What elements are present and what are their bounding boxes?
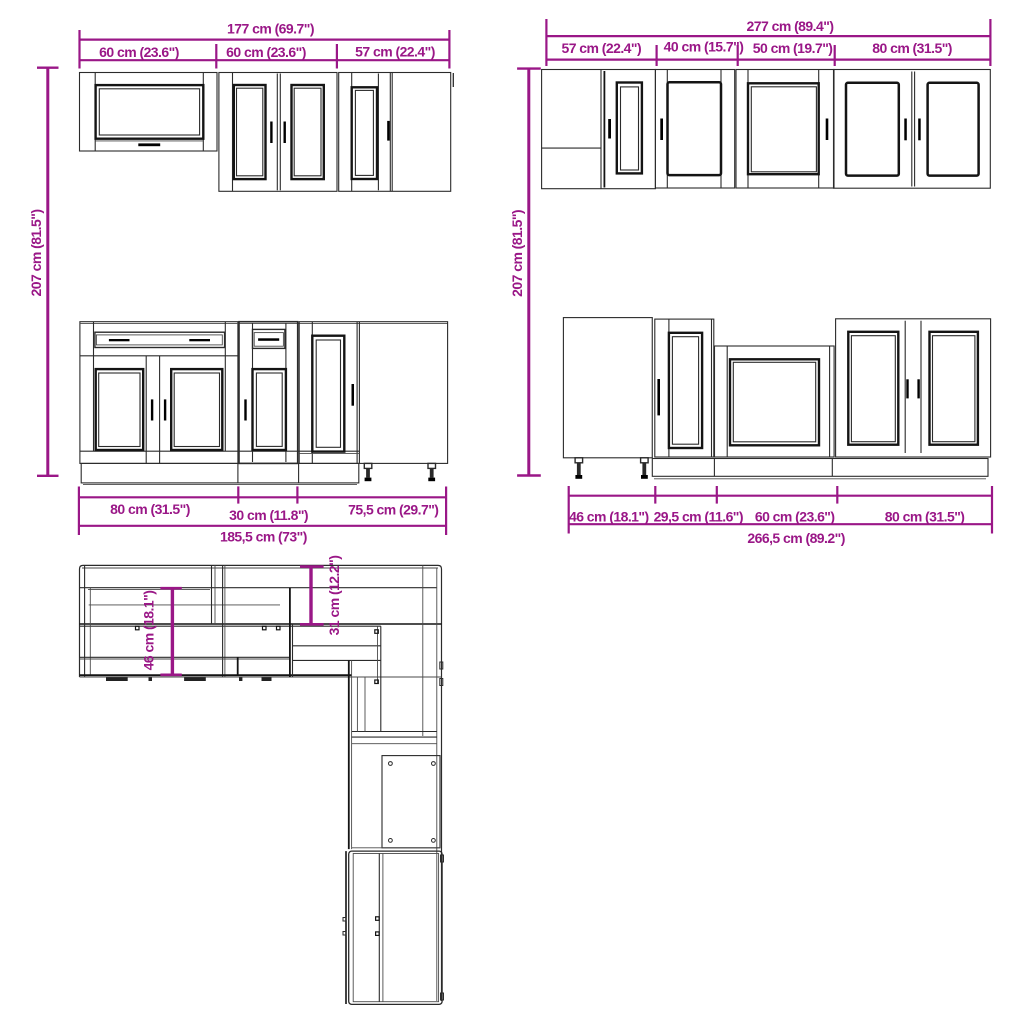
svg-text:80 cm (31.5"): 80 cm (31.5") (110, 501, 190, 517)
svg-text:31 cm (12.2"): 31 cm (12.2") (326, 556, 342, 636)
svg-text:46 cm (18.1"): 46 cm (18.1") (569, 508, 649, 524)
svg-text:60 cm (23.6"): 60 cm (23.6") (226, 44, 306, 60)
svg-text:185,5 cm (73"): 185,5 cm (73") (220, 528, 307, 544)
svg-text:207 cm (81.5"): 207 cm (81.5") (28, 210, 44, 297)
svg-text:177 cm (69.7"): 177 cm (69.7") (227, 21, 314, 37)
svg-text:60 cm (23.6"): 60 cm (23.6") (755, 508, 835, 524)
svg-text:29,5 cm (11.6"): 29,5 cm (11.6") (654, 508, 743, 524)
svg-text:50 cm (19.7"): 50 cm (19.7") (753, 40, 833, 56)
svg-text:40 cm (15.7"): 40 cm (15.7") (664, 38, 744, 54)
svg-text:80 cm (31.5"): 80 cm (31.5") (885, 508, 965, 524)
svg-text:266,5 cm (89.2"): 266,5 cm (89.2") (747, 530, 844, 546)
svg-text:80 cm (31.5"): 80 cm (31.5") (872, 40, 952, 56)
svg-text:57 cm (22.4"): 57 cm (22.4") (355, 44, 435, 60)
svg-text:57 cm (22.4"): 57 cm (22.4") (561, 40, 641, 56)
svg-text:60 cm (23.6"): 60 cm (23.6") (99, 44, 179, 60)
svg-text:75,5 cm (29.7"): 75,5 cm (29.7") (348, 502, 438, 518)
svg-text:30 cm (11.8"): 30 cm (11.8") (229, 507, 308, 523)
svg-text:207 cm (81.5"): 207 cm (81.5") (509, 210, 525, 297)
svg-text:46 cm (18.1"): 46 cm (18.1") (141, 591, 157, 671)
svg-text:277 cm (89.4"): 277 cm (89.4") (747, 18, 834, 34)
